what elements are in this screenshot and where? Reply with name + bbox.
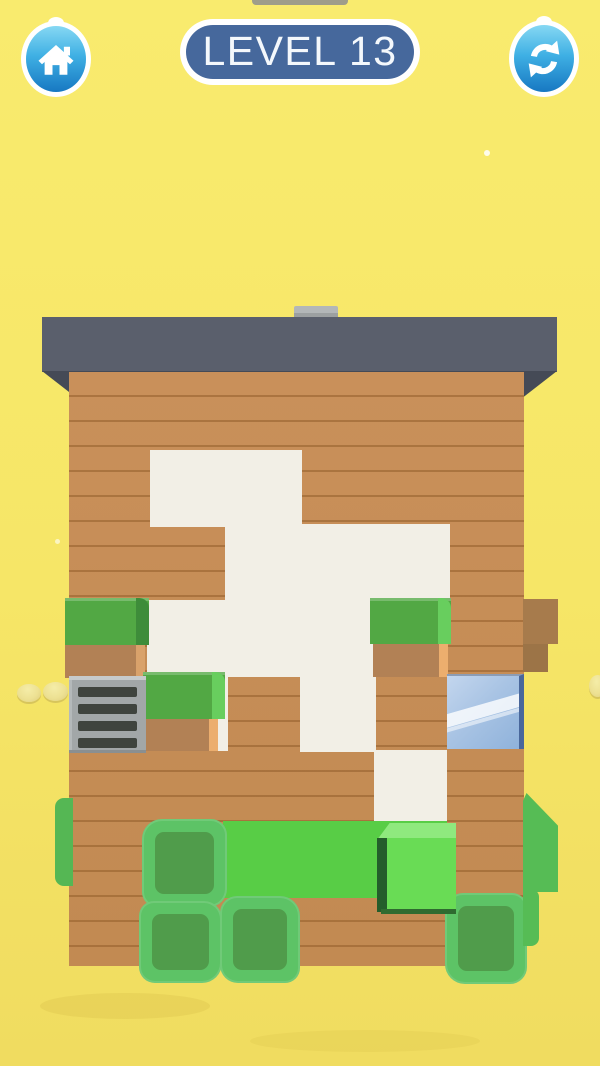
cube-front-face — [387, 838, 456, 909]
grate-slats — [78, 687, 137, 755]
level-label: LEVEL 13 — [202, 31, 397, 74]
grass-block-left-dirt — [65, 645, 145, 678]
grass-block-right-green — [370, 598, 451, 644]
level-pill: LEVEL 13 — [180, 19, 420, 85]
coin — [43, 682, 68, 701]
grass-block-right-dirt — [373, 644, 448, 677]
level-pill-face: LEVEL 13 — [186, 25, 414, 79]
cube-shadow — [381, 909, 456, 914]
home-button[interactable] — [21, 21, 91, 97]
restart-icon — [523, 38, 565, 80]
ground-shadow-streak — [250, 1030, 480, 1052]
carved-region[interactable] — [374, 750, 447, 824]
window — [447, 674, 524, 749]
carved-region[interactable] — [225, 524, 450, 602]
game-screen: LEVEL 13 — [0, 0, 600, 1066]
roof — [42, 317, 557, 372]
ventilation-grate — [69, 676, 146, 753]
carved-region[interactable] — [300, 674, 376, 752]
top-gray-sliver — [252, 0, 348, 5]
hedge-block — [139, 901, 222, 983]
white-fleck — [484, 150, 490, 156]
restart-button-face — [514, 25, 574, 92]
carved-region[interactable] — [150, 450, 302, 527]
hedge-block — [142, 819, 227, 907]
hedge-block — [220, 896, 300, 983]
side-hedge-right-lower — [523, 889, 539, 946]
green-cube — [373, 821, 456, 914]
white-fleck — [55, 539, 60, 544]
side-hedge-right — [523, 793, 558, 892]
hedge-block — [445, 893, 527, 984]
home-icon — [35, 38, 77, 80]
restart-button[interactable] — [509, 20, 579, 97]
coin — [589, 675, 600, 697]
side-dirt-block — [523, 599, 558, 644]
carved-region[interactable] — [147, 600, 375, 677]
grass-block-middle-dirt — [143, 719, 218, 751]
grass-block-left-green — [65, 598, 149, 645]
coin — [17, 684, 41, 702]
side-hedge-left — [55, 798, 73, 886]
cube-left-edge — [377, 838, 387, 912]
grass-block-middle-green — [143, 672, 225, 719]
home-button-face — [26, 26, 86, 92]
side-dirt-block — [523, 644, 548, 672]
ground-shadow-streak — [40, 993, 210, 1019]
